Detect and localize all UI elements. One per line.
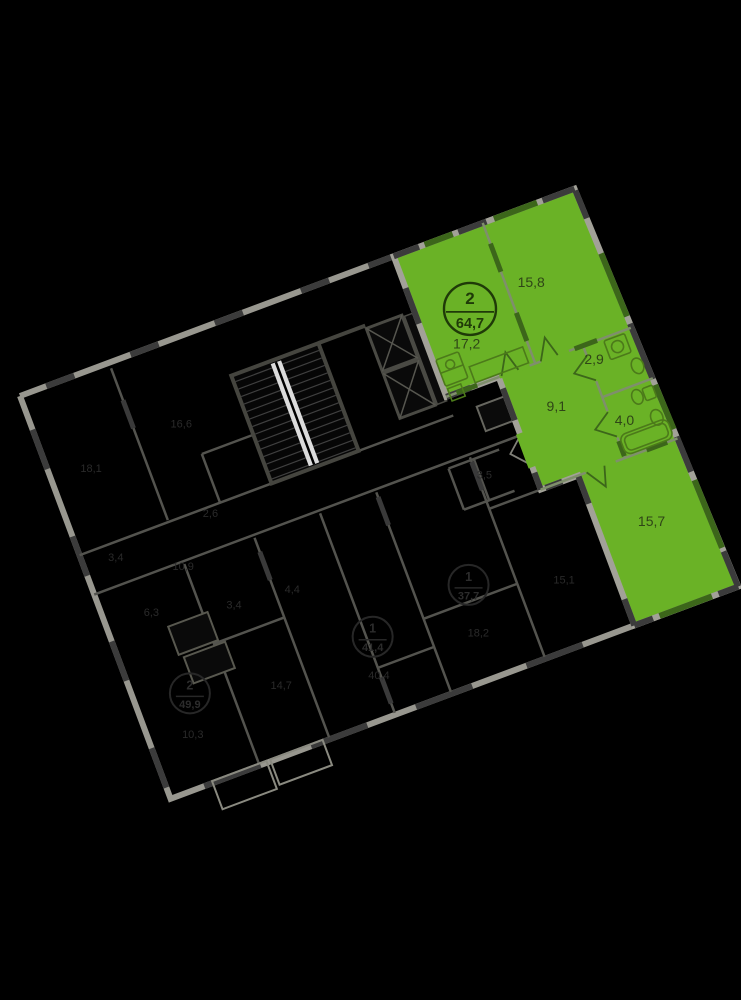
bg-room-label: 14,7 [270, 680, 291, 692]
bg-apartment-badge-1: 2 49,9 [170, 673, 210, 713]
balcony-2 [270, 740, 332, 785]
bg-badge-rooms: 1 [369, 622, 376, 636]
room-area-label-room: 15,7 [638, 513, 665, 529]
floor-plan-stage: 16,6 18,1 2,6 3,4 10,9 6,3 3,4 4,4 3,5 1… [0, 0, 741, 1000]
room-area-label-hallway: 9,1 [547, 398, 567, 414]
room-area-label-bathroom: 4,0 [615, 412, 635, 428]
bg-badge-area: 41,4 [362, 642, 384, 654]
bg-room-label: 2,6 [203, 508, 218, 520]
bg-room-label: 3,4 [108, 552, 123, 564]
bg-room-label: 10,3 [182, 729, 203, 741]
floor-plan-svg: 16,6 18,1 2,6 3,4 10,9 6,3 3,4 4,4 3,5 1… [0, 0, 741, 1000]
bg-room-label: 4,4 [285, 584, 300, 596]
bg-room-label: 18,2 [468, 628, 489, 640]
rotated-plan: 16,6 18,1 2,6 3,4 10,9 6,3 3,4 4,4 3,5 1… [20, 184, 741, 825]
bg-room-label: 3,4 [226, 600, 241, 612]
lobby-wall [318, 326, 365, 344]
bg-badge-rooms: 1 [465, 570, 472, 584]
bg-apartment-badge-3: 1 37,7 [449, 565, 489, 605]
room-area-label-wc: 2,9 [584, 351, 604, 367]
bg-room-label: 6,3 [144, 607, 159, 619]
bg-room-label: 18,1 [80, 463, 101, 475]
bg-room-label: 3,5 [477, 470, 492, 482]
stairwell [231, 343, 358, 483]
room-area-label-bedroom: 15,8 [518, 274, 545, 290]
bg-apartment-badge-2: 1 41,4 [353, 617, 393, 657]
badge-rooms-count: 2 [465, 289, 474, 308]
bg-room-label: 40,4 [368, 670, 389, 682]
bg-badge-rooms: 2 [186, 678, 193, 692]
bg-room-label: 10,9 [173, 561, 194, 573]
badge-total-area: 64,7 [456, 316, 484, 332]
bg-room-label: 16,6 [171, 419, 192, 431]
bg-badge-area: 37,7 [458, 590, 479, 602]
balcony-1 [212, 761, 277, 809]
apartment-outline [394, 184, 738, 659]
room-area-label-living: 17,2 [453, 336, 480, 352]
bg-room-label: 15,1 [553, 574, 574, 586]
bg-badge-area: 49,9 [179, 699, 200, 711]
apartment-highlight[interactable]: 17,2 15,8 2,9 9,1 4,0 15,7 2 64,7 [394, 184, 738, 659]
